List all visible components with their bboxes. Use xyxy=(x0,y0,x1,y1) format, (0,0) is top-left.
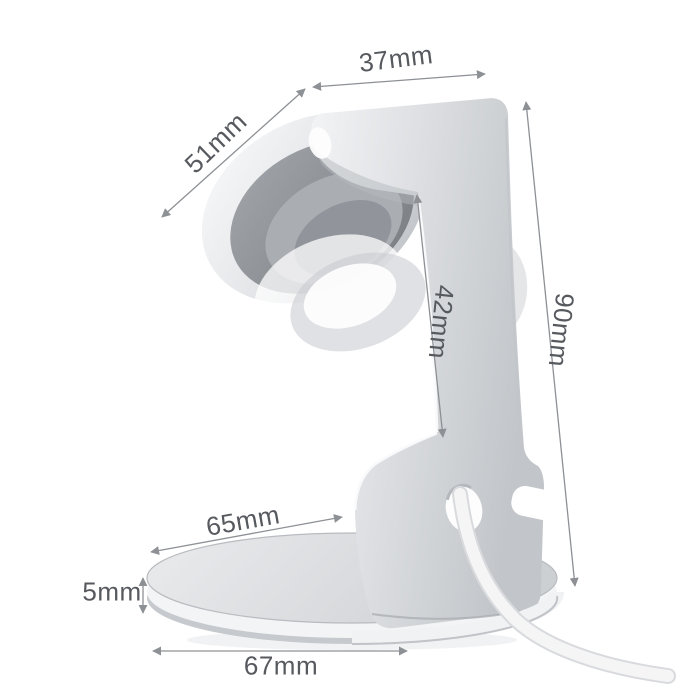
product-dimension-diagram: 37mm 51mm 42mm 90mm 65mm 5mm 67mm xyxy=(0,0,700,700)
dimension-line-top-width xyxy=(313,74,485,87)
dim-label-base-thickness: 5mm xyxy=(82,577,141,608)
dim-label-base-width: 67mm xyxy=(244,651,318,682)
